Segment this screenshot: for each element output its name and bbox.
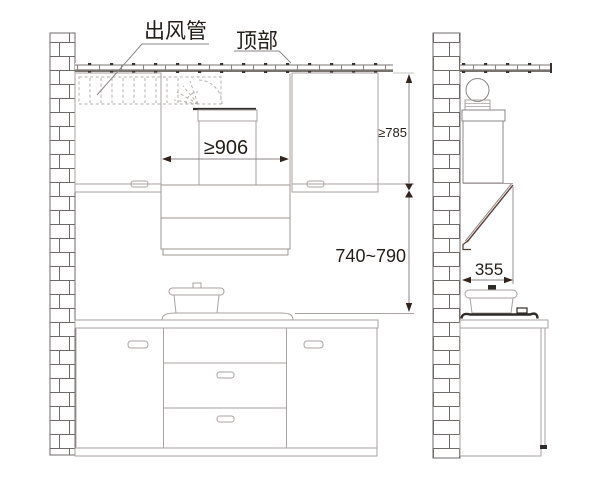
dimension-vertical-chain: ≥785 740~790 [295, 73, 414, 314]
cooktop-profile [462, 314, 538, 319]
arrow-left-icon [462, 277, 471, 283]
hood-body-front [161, 185, 290, 255]
dimension-hood-width: ≥906 [162, 137, 289, 162]
arrow-up-icon [406, 74, 412, 83]
arrow-up-mid-icon [405, 191, 413, 198]
upper-cabinet-right [292, 73, 378, 192]
ceiling-leader-line [279, 51, 291, 63]
hood-glass-panel [467, 185, 513, 242]
arrow-right-icon [504, 277, 513, 283]
ceiling-side [460, 63, 552, 73]
left-wall [50, 33, 75, 455]
arrow-right-icon [280, 156, 289, 162]
installation-diagram: ≥906 ≥785 740~790 [0, 0, 600, 480]
duct-outline [79, 77, 221, 104]
pot-lid-knob [193, 283, 201, 288]
arrow-left-icon [162, 156, 171, 162]
hood-width-value: ≥906 [204, 137, 248, 159]
toe-kick [75, 448, 377, 456]
pot-front [169, 283, 224, 313]
right-wall-brick-column [433, 33, 460, 458]
ceiling-label: 顶部 [236, 30, 278, 53]
diagram-canvas: ≥906 ≥785 740~790 [0, 0, 600, 480]
drawer-bottom-handle [217, 416, 234, 422]
pot-lid-side [465, 290, 517, 298]
pot-body [174, 295, 219, 313]
base-cabinet-front [75, 328, 377, 456]
hood-depth-value: 355 [475, 260, 503, 279]
base-door-right-handle [304, 341, 323, 348]
pot-lid-knob-side [488, 285, 496, 290]
hood-base-strip [163, 249, 288, 255]
cabinet-foot [540, 445, 547, 449]
base-door-left-handle [128, 341, 148, 348]
upper-cabinet-left [75, 73, 161, 192]
pot-body-side [470, 298, 513, 313]
duct-outlet-circle [466, 79, 489, 102]
chimney-top-side [462, 110, 505, 121]
base-cabinet-side [460, 328, 547, 456]
callout-duct: 出风管 [97, 20, 209, 95]
countertop-side [460, 320, 548, 328]
countertop-front [75, 320, 378, 328]
arrow-down-icon [406, 303, 412, 312]
left-wall-brick-column [50, 33, 75, 455]
duct-elbow-arc [198, 80, 222, 104]
callout-ceiling: 顶部 [234, 30, 291, 63]
chimney-body-side [463, 121, 503, 183]
cooktop-knob [517, 308, 527, 313]
cooktop-front [162, 313, 293, 320]
hood-front-lip [463, 240, 471, 250]
duct-label: 出风管 [144, 20, 207, 43]
arrow-down-mid-icon [405, 184, 413, 191]
ceiling-front [75, 63, 393, 73]
ceiling-gap-value: ≥785 [378, 125, 407, 140]
install-height-value: 740~790 [335, 246, 406, 266]
pot-lid [169, 288, 224, 295]
pot-side [465, 285, 517, 313]
hood-side [462, 79, 513, 250]
drawer-top-handle [217, 372, 234, 378]
